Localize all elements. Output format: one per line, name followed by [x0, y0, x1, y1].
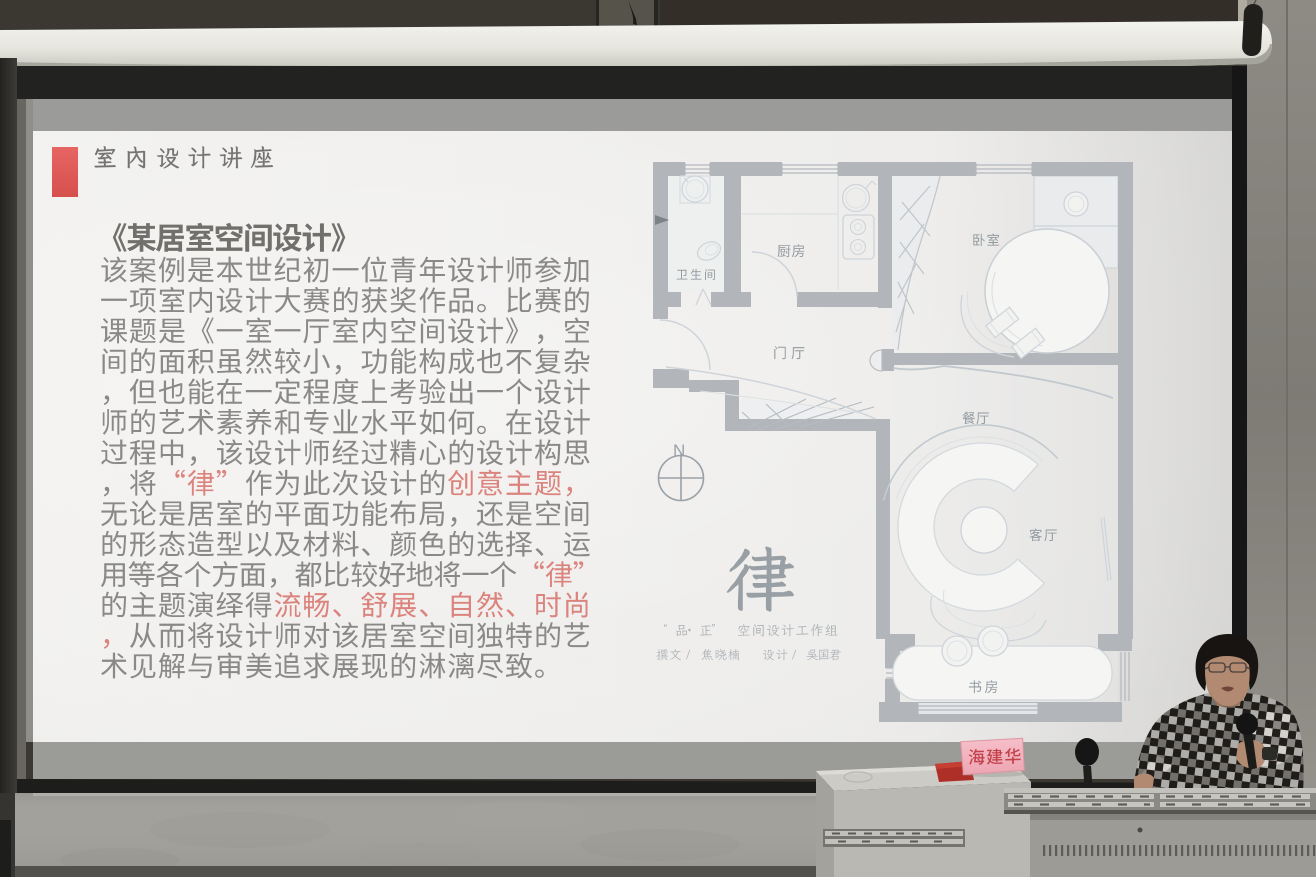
- svg-text:N: N: [673, 441, 685, 460]
